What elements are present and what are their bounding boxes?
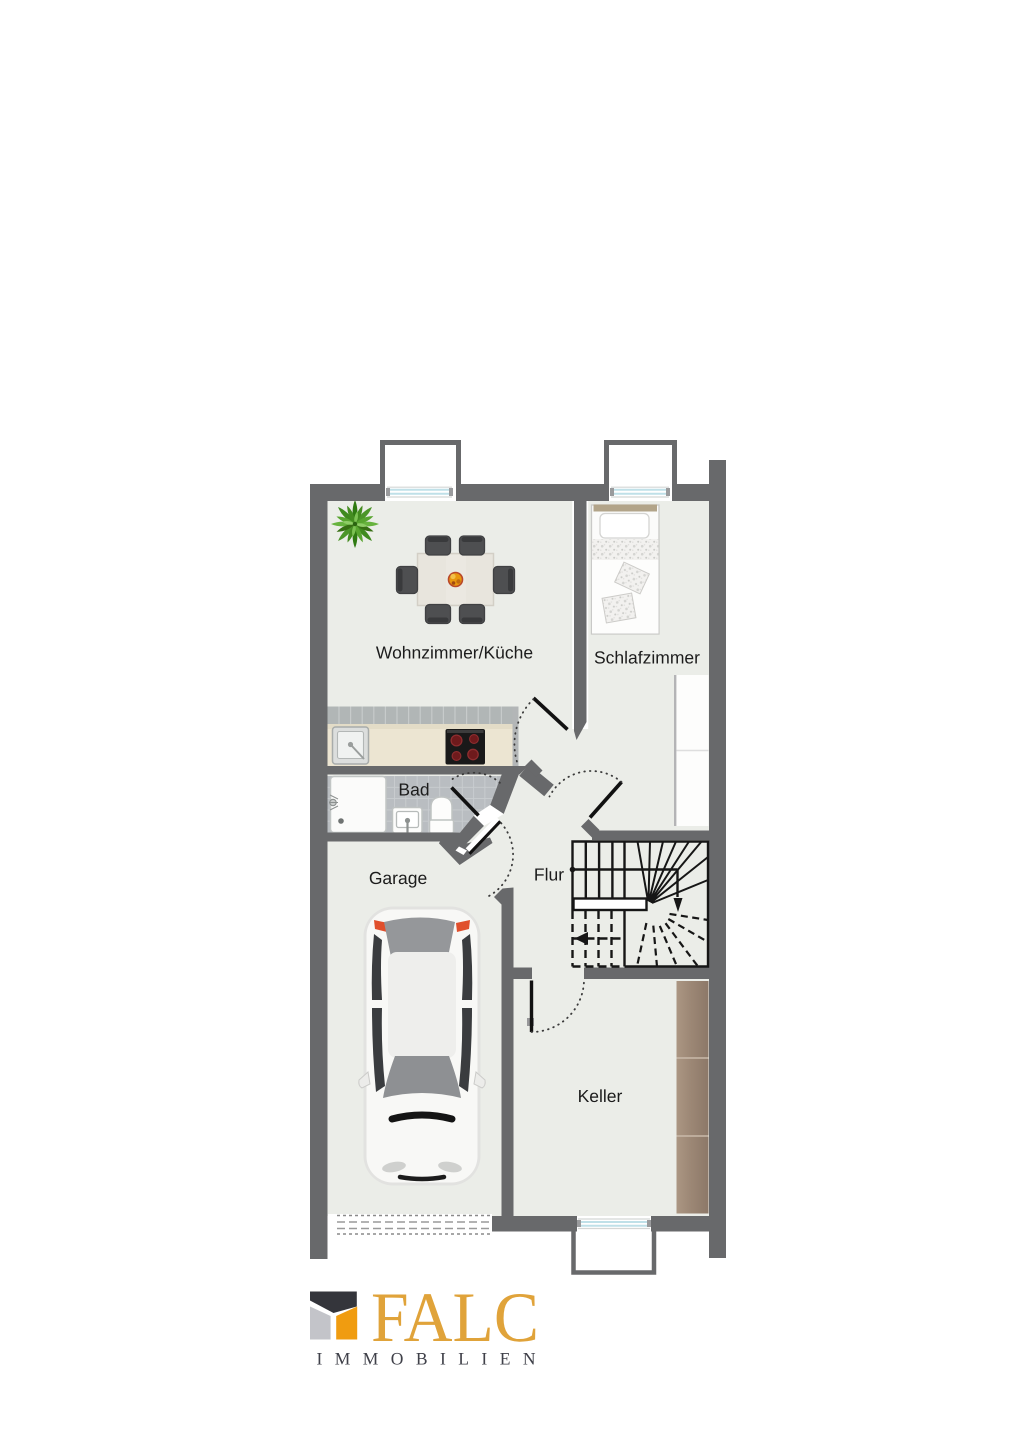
svg-text:Garage: Garage xyxy=(369,868,427,888)
svg-text:Bad: Bad xyxy=(398,780,429,800)
svg-text:Wohnzimmer/Küche: Wohnzimmer/Küche xyxy=(376,643,533,663)
svg-text:Flur: Flur xyxy=(534,865,564,885)
svg-text:Schlafzimmer: Schlafzimmer xyxy=(594,648,700,668)
svg-text:FALC: FALC xyxy=(371,1279,539,1357)
svg-text:Keller: Keller xyxy=(578,1086,623,1106)
svg-text:IMMOBILIEN: IMMOBILIEN xyxy=(317,1349,536,1369)
